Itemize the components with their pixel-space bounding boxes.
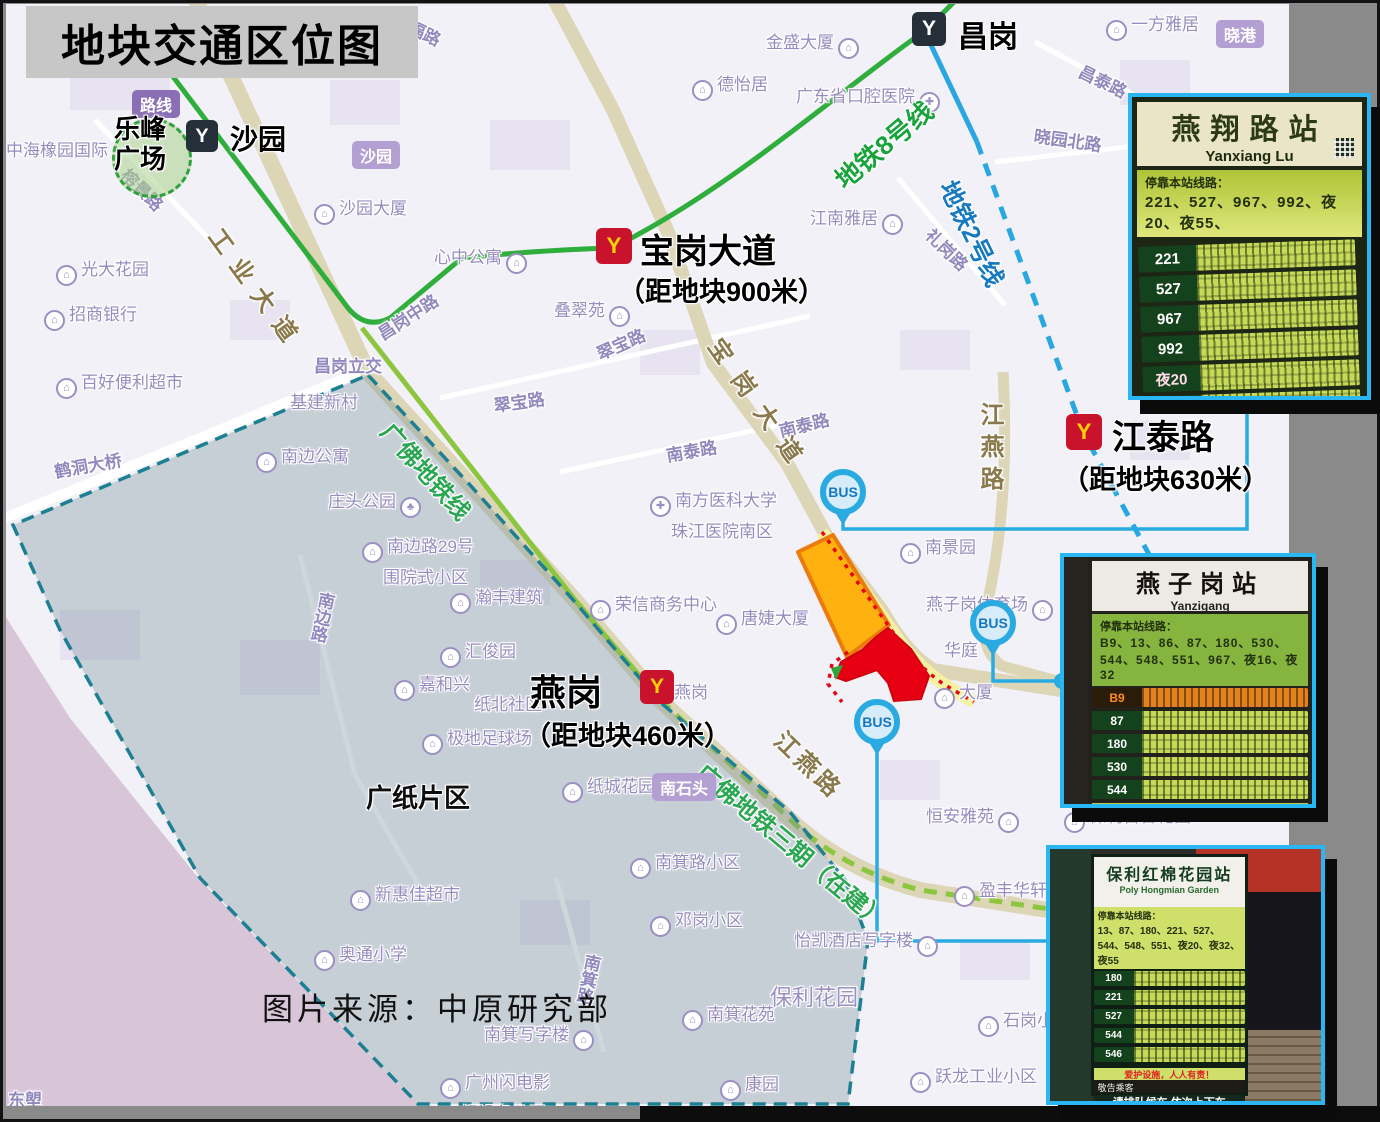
bus-route-row: 221 (1094, 990, 1245, 1005)
bus-route-stops-pattern (1134, 971, 1245, 986)
map-label: ⌂南边路29号围院式小区 (358, 532, 474, 588)
bottom-shadow-strip (640, 1106, 1380, 1122)
poi-icon: ⌂ (917, 936, 938, 957)
metro-station-name: 昌岗 (958, 12, 1018, 56)
poi-icon: ⌂ (314, 204, 335, 225)
photo1-route-rows: 221527967992夜20夜55 (1134, 236, 1365, 400)
bus-route-number: 967 (1140, 305, 1199, 333)
map-label: ⌂盈丰华轩 (950, 876, 1047, 907)
map-label: ⌂沙园大厦 (310, 194, 407, 225)
map-label: ⌂奥通小学 (310, 940, 407, 971)
bus-route-number: 530 (1092, 757, 1142, 776)
poi-icon: ⌂ (56, 265, 77, 286)
map-label: ⌂康园 (716, 1070, 779, 1101)
map-label: ⌂跃龙工业小区 (906, 1062, 1037, 1093)
poi-icon: ⌂ (716, 614, 737, 635)
photo3-stops-panel: 停靠本站线路： 13、87、180、221、527、544、548、551、夜2… (1094, 907, 1245, 969)
bus-route-number: 180 (1092, 734, 1142, 753)
screenshot-stage: 乐峰 广场 中海橡园国际⌂光大花园⌂招商银行⌂百好便利超市⌂沙园大厦心中公寓⌂⌂… (0, 0, 1380, 1122)
poi-icon: ⌂ (910, 1072, 931, 1093)
map-label: 基建新村 (290, 388, 358, 413)
bus-route-stops-pattern (1142, 711, 1308, 730)
metro-station-distance: （距地块630米） (1062, 458, 1269, 497)
poi-icon: ⌂ (590, 600, 611, 621)
bus-route-number: 527 (1139, 275, 1198, 303)
poi-icon: ⌂ (350, 890, 371, 911)
map-label: ⌂荣信商务中心 (586, 590, 717, 621)
poi-icon: ⌂ (630, 858, 651, 879)
poi-icon: ⌂ (720, 1080, 741, 1101)
map-label: 中海橡园国际 (6, 136, 108, 161)
photo3-route-rows: 180221527544546 (1094, 969, 1245, 1068)
map-label: ⌂德怡居 (688, 70, 768, 101)
bus-route-row: 544 (1092, 780, 1308, 799)
boxed-place-label: 晓港 (1216, 20, 1264, 48)
map-label: 恒安雅苑⌂ (926, 802, 1023, 833)
bus-route-row: 180 (1094, 971, 1245, 986)
poi-icon: ⌂ (422, 734, 443, 755)
bus-marker-tail (833, 509, 853, 525)
metro-station-icon: Y (596, 228, 632, 264)
map-label: ⌂一方雅居 (1102, 10, 1199, 41)
bus-route-number: 546 (1094, 1047, 1134, 1062)
map-label: ⌂极地足球场 (418, 724, 532, 755)
map-label: ⌂唐婕大厦 (712, 604, 809, 635)
photo1-subtitle: Yanxiang Lu (1137, 148, 1362, 165)
map-label: ✚南方医科大学珠江医院南区 (646, 486, 777, 542)
poi-icon: ⌂ (934, 688, 955, 709)
map-label: ⌂大厦 (930, 678, 993, 709)
map-label: ⌂南边公寓 (252, 442, 349, 473)
plaza-line1: 乐峰 (114, 114, 166, 144)
photo2-sign-header: 燕子岗站 Yanzigang (1092, 561, 1308, 611)
poi-icon: ⌂ (56, 378, 77, 399)
map-label: 保利花园 (770, 980, 858, 1012)
photo3-car (1240, 892, 1321, 1033)
bus-route-stops-pattern (1196, 239, 1356, 271)
bus-route-stops-pattern (1197, 269, 1357, 301)
poi-icon: ⌂ (900, 543, 921, 564)
poi-icon: ⌂ (978, 1016, 999, 1037)
metro-station-distance: （距地块900米） (618, 270, 825, 309)
metro-station-distance: （距地块460米） (524, 714, 731, 753)
photo2-route-rows: B987180530544 (1092, 688, 1308, 799)
photo2-subtitle: Yanzigang (1092, 599, 1308, 613)
poi-icon: ⌂ (954, 886, 975, 907)
image-source-note: 图片来源：中原研究部 (262, 984, 612, 1029)
boxed-place-label: 沙园 (352, 141, 400, 169)
photo3-sign-header: 保利红棉花园站 Poly Hongmian Garden (1094, 857, 1245, 907)
map-label: ⌂瀚丰建筑 (446, 583, 543, 614)
map-label: ⌂汇俊园 (436, 637, 516, 668)
bus-route-row: B9 (1092, 688, 1308, 707)
bus-stop-photo-yanxianglu: 燕翔路站 Yanxiang Lu 停靠本站线路： 221、527、967、992… (1128, 93, 1371, 400)
metro-station-name: 燕岗 (530, 664, 602, 716)
map-label: 广纸片区 (366, 778, 470, 815)
bus-route-number: 87 (1092, 711, 1142, 730)
poi-icon: ⌂ (650, 916, 671, 937)
poi-icon: ⌂ (682, 1010, 703, 1031)
bus-stop-marker: BUS (854, 699, 900, 745)
photo2-notice: 爱护设施，人人有责！ (1092, 803, 1308, 808)
bus-route-number: 221 (1094, 990, 1134, 1005)
map-label: ⌂新惠佳超市 (346, 880, 460, 911)
bus-route-stops-pattern (1134, 1047, 1245, 1062)
map-label: ⌂光大花园 (52, 255, 149, 286)
photo1-sign-header: 燕翔路站 Yanxiang Lu (1137, 102, 1362, 166)
photo3-footer: 请排队候车 依次上下车 (1094, 1095, 1245, 1105)
map-label: ⌂纸城花园 (558, 772, 655, 803)
bus-route-stops-pattern (1142, 757, 1308, 776)
map-label: 燕岗 (674, 678, 708, 703)
map-label: ⌂百好便利超市 (52, 368, 183, 399)
map-label: ⌂南箕花苑 (678, 1000, 775, 1031)
road-label: 江燕路 (972, 402, 1007, 498)
bus-route-row: 546 (1094, 1047, 1245, 1062)
poi-icon: ⌂ (609, 306, 630, 327)
street-label: 东塱 (8, 1086, 42, 1106)
photo3-stops-list: 13、87、180、221、527、544、548、551、夜20、夜32、夜5… (1098, 922, 1241, 967)
bus-route-stops-pattern (1142, 688, 1308, 707)
photo1-stops-panel: 停靠本站线路： 221、527、967、992、夜20、夜55、 (1137, 170, 1362, 237)
bus-route-row: 夜20 (1142, 359, 1360, 393)
metro-station-name: 江泰路 (1112, 410, 1214, 459)
bus-route-row: 967 (1140, 299, 1358, 333)
bus-route-number: B9 (1092, 688, 1142, 707)
bus-route-row: 221 (1138, 239, 1356, 273)
map-label: ⌂南景园 (896, 533, 976, 564)
bus-route-row: 87 (1092, 711, 1308, 730)
photo2-stops-header: 停靠本站线路： (1100, 618, 1300, 634)
bus-route-number: 夜20 (1142, 365, 1201, 393)
bus-route-stops-pattern (1134, 990, 1245, 1005)
bus-route-stops-pattern (1142, 780, 1308, 799)
bus-route-number: 180 (1094, 971, 1134, 986)
bus-route-row: 544 (1094, 1028, 1245, 1043)
lefeng-plaza-label: 乐峰 广场 (114, 114, 166, 174)
poi-icon: ⌂ (450, 593, 471, 614)
photo1-title: 燕翔路站 (1137, 102, 1362, 148)
metro-station-icon: Y (640, 670, 674, 704)
poi-icon: ⌂ (1106, 20, 1127, 41)
map-label: 江南雅居⌂ (810, 204, 907, 235)
photo3-bottom: 敬告乘客 (1094, 1080, 1245, 1093)
map-label: ⌂邓岗小区 (646, 906, 743, 937)
map-label: ⌂嘉和兴 (390, 670, 470, 701)
poi-icon: ⌂ (573, 1030, 594, 1051)
poi-icon: ⌂ (394, 680, 415, 701)
poi-icon: ⌂ (882, 214, 903, 235)
metro-station-icon: Y (1066, 414, 1102, 450)
photo3-pole (1050, 849, 1091, 1101)
bus-stop-marker: BUS (970, 600, 1016, 646)
photo3-title: 保利红棉花园站 (1094, 857, 1245, 885)
poi-icon: ⌂ (314, 950, 335, 971)
photo3-subtitle: Poly Hongmian Garden (1094, 885, 1245, 895)
photo3-notice: 爱护设施，人人有责！ (1094, 1068, 1245, 1080)
bus-route-stops-pattern (1201, 389, 1361, 400)
map-label: 金盛大厦⌂ (766, 28, 863, 59)
bus-route-number: 544 (1092, 780, 1142, 799)
poi-icon: ⌂ (1064, 812, 1085, 833)
metro-station-name: 宝岗大道 (640, 224, 776, 273)
photo2-title: 燕子岗站 (1092, 561, 1308, 599)
poi-icon: ⌂ (440, 1078, 461, 1099)
bus-route-stops-pattern (1134, 1028, 1245, 1043)
poi-icon: ⌂ (562, 782, 583, 803)
bus-route-stops-pattern (1134, 1009, 1245, 1024)
map-label: 庄头公园♣ (328, 487, 425, 518)
photo3-sign: 保利红棉花园站 Poly Hongmian Garden 停靠本站线路： 13、… (1091, 854, 1248, 1096)
bus-route-number: 992 (1141, 335, 1200, 363)
title-bar: 地块交通区位图 (26, 6, 418, 78)
poi-icon: ⌂ (692, 80, 713, 101)
bus-route-row: 527 (1139, 269, 1357, 303)
bus-route-stops-pattern (1200, 359, 1360, 391)
metro-station-icon: Y (912, 12, 946, 46)
bus-route-row: 527 (1094, 1009, 1245, 1024)
poi-icon: ⌂ (998, 812, 1019, 833)
bus-marker-tail (867, 739, 887, 755)
street-label: 昌岗立交 (314, 352, 382, 377)
map-label: ⌂南箕路小区 (626, 848, 740, 879)
bus-marker-tail (983, 640, 1003, 656)
bus-route-number: 夜55 (1143, 395, 1202, 400)
bus-stop-photo-yanzigang: 燕子岗站 Yanzigang 停靠本站线路： B9、13、86、87、180、5… (1060, 553, 1316, 808)
metro-station-icon: Y (186, 120, 218, 152)
page-title: 地块交通区位图 (61, 10, 383, 74)
bus-route-row: 530 (1092, 757, 1308, 776)
map-label: ⌂广州闪电影视设备公司 (436, 1068, 550, 1106)
photo2-pole (1064, 557, 1088, 804)
poi-icon: ⌂ (256, 452, 277, 473)
photo1-qr-icon (1334, 138, 1354, 158)
poi-icon: ⌂ (440, 647, 461, 668)
bus-route-stops-pattern (1199, 329, 1359, 361)
photo3-stops-header: 停靠本站线路： (1098, 909, 1241, 922)
bus-route-stops-pattern (1198, 299, 1358, 331)
photo2-stops-panel: 停靠本站线路： B9、13、86、87、180、530、544、548、551、… (1092, 614, 1308, 686)
plaza-line2: 广场 (114, 144, 166, 174)
bus-route-stops-pattern (1142, 734, 1308, 753)
bus-route-number: 544 (1094, 1028, 1134, 1043)
poi-icon: ⌂ (838, 38, 859, 59)
bus-stop-marker: BUS (820, 469, 866, 515)
poi-icon: ⌂ (506, 253, 527, 274)
poi-icon: ⌂ (1032, 600, 1053, 621)
photo1-stops-header: 停靠本站线路： (1145, 174, 1354, 191)
bus-route-row: 992 (1141, 329, 1359, 363)
bus-route-number: 527 (1094, 1009, 1134, 1024)
poi-icon: ⌂ (44, 310, 65, 331)
poi-icon: ♣ (400, 497, 421, 518)
photo2-stops-list: B9、13、86、87、180、530、544、548、551、967、夜16、… (1100, 634, 1300, 682)
boxed-place-label: 南石头 (652, 773, 716, 801)
metro-station-name: 沙园 (230, 118, 286, 158)
poi-icon: ✚ (650, 496, 671, 517)
poi-icon: ⌂ (362, 542, 383, 563)
map-label: ⌂招商银行 (40, 300, 137, 331)
bus-route-row: 180 (1092, 734, 1308, 753)
photo1-stops-list: 221、527、967、992、夜20、夜55、 (1145, 191, 1354, 233)
bus-stop-photo-poly-hongmian: 保利红棉花园站 Poly Hongmian Garden 停靠本站线路： 13、… (1046, 845, 1325, 1105)
bus-route-number: 221 (1138, 245, 1197, 273)
map-label: 心中公寓⌂ (434, 243, 531, 274)
